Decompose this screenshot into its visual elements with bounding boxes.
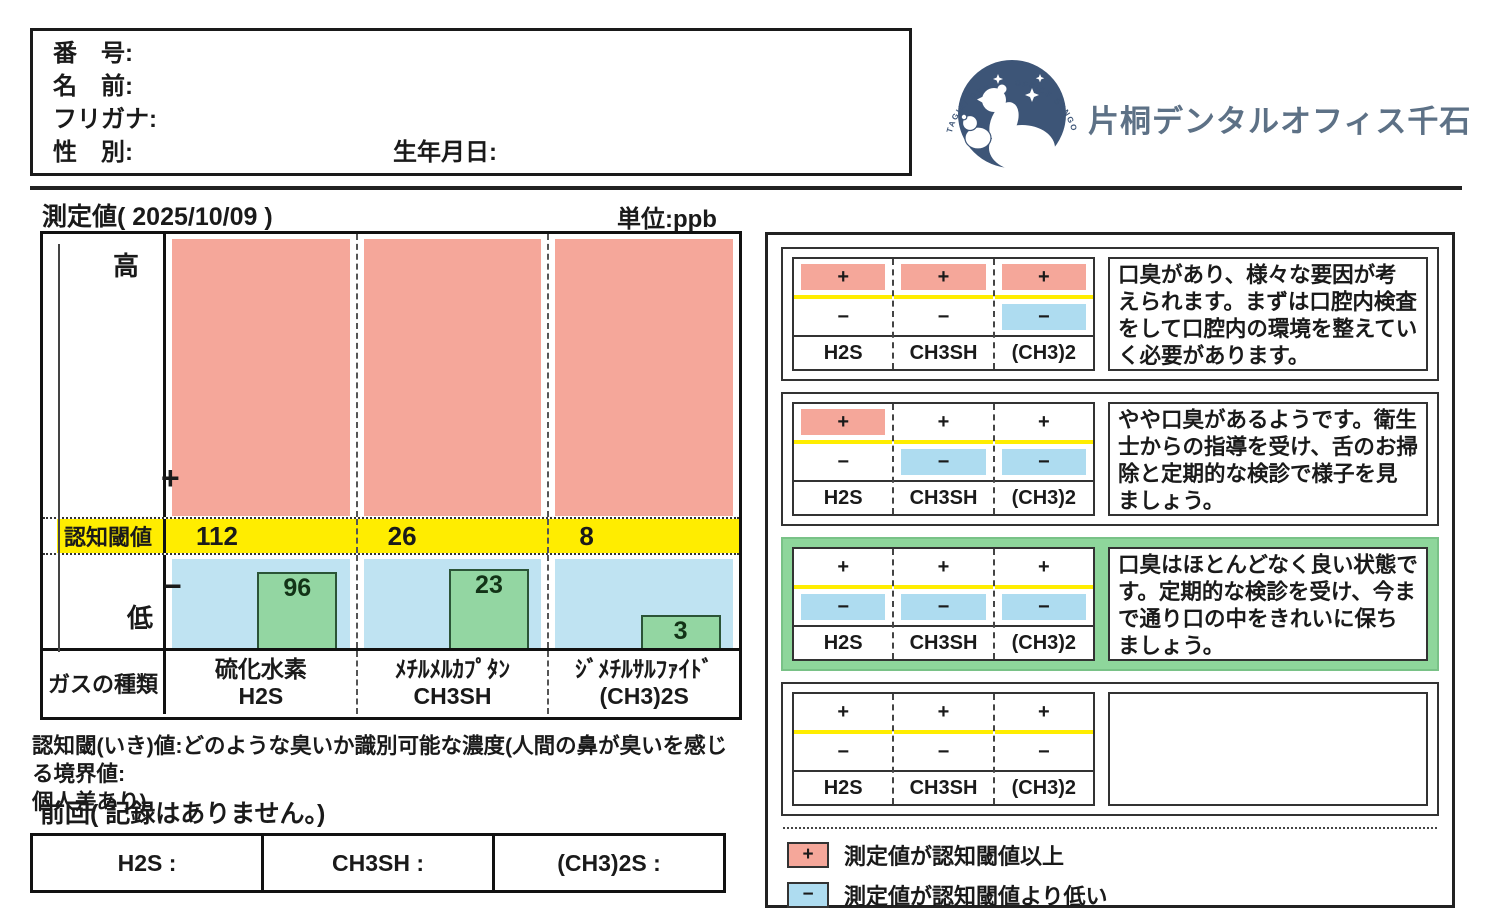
minus-cell: − [801,304,885,330]
gas-label: H2S [794,482,892,514]
previous-record-label: 前回( 記録はありません。) [40,794,325,830]
interpretation-box-empty: + − H2S + − CH3SH + − (CH3)2 [781,682,1439,816]
unit-label: 単位:ppb [617,199,717,234]
pattern-table: + − H2S + − CH3SH + − (CH3)2 [792,402,1095,516]
axis-label-high: 高 [113,246,139,283]
axis-label-plus: + [161,460,180,497]
interpretation-box-good-selected: + − H2S + − CH3SH + − (CH3)2 口臭はほとんどなく [781,537,1439,671]
breath-test-report-page: { "patient_box": { "number_label": "番 号:… [0,0,1500,920]
h2s-below-zone: 96 [163,555,356,648]
ch3sh-below-zone: 23 [356,555,548,648]
legend-below-threshold: − 測定値が認知閾値より低い [787,879,1439,911]
ch32s-threshold-value: 8 [549,521,593,552]
measurement-title: 測定値( 2025/10/09 ) [42,197,273,233]
plus-cell: + [1002,264,1086,290]
gas-type-row: ガスの種類 硫化水素 H2S ﾒﾁﾙﾒﾙｶﾌﾟﾀﾝ CH3SH ｼﾞﾒﾁﾙｻﾙﾌ… [43,648,739,714]
plus-cell: + [1002,554,1086,580]
h2s-value-bar: 96 [257,572,337,648]
interpretation-box-severe: + − H2S + − CH3SH + − (CH3)2 口臭があり、様々な [781,247,1439,381]
gas-label: H2S [794,772,892,804]
minus-cell: − [1002,449,1086,475]
threshold-band-label: 認知閾値 [54,520,152,552]
ch3sh-threshold-value: 26 [358,521,417,552]
ch32s-below-zone: 3 [547,555,739,648]
gas-label: (CH3)2 [995,627,1093,659]
plus-cell: + [1002,409,1086,435]
patient-gender-row: 性 別: 生年月日: [53,136,909,169]
minus-cell: − [801,449,885,475]
plus-cell: + [801,554,885,580]
legend-divider [783,827,1437,829]
clinic-logo: KATAGIRI DENTAL OFFICE SENGOKU [942,50,1082,180]
gas-measurement-chart: 認知閾値 112 26 8 96 23 [40,231,742,720]
gas-label: CH3SH [894,772,992,804]
minus-cell: − [1002,594,1086,620]
patient-gender-label: 性 別: [53,139,133,166]
ch3sh-above-zone [356,234,548,517]
polar-bear-logo-icon: KATAGIRI DENTAL OFFICE SENGOKU [942,50,1082,180]
gas-label-ch32s: ｼﾞﾒﾁﾙｻﾙﾌｧｲﾄﾞ (CH3)2S [547,651,739,714]
gas-label-ch3sh: ﾒﾁﾙﾒﾙｶﾌﾟﾀﾝ CH3SH [356,651,548,714]
pattern-table: + − H2S + − CH3SH + − (CH3)2 [792,692,1095,806]
axis-label-low: 低 [127,598,153,635]
gas-type-header: ガスの種類 [48,667,158,699]
ch3sh-value-bar: 23 [449,569,529,648]
minus-cell: − [801,594,885,620]
patient-number-label: 番 号: [53,37,909,70]
clinic-name: 片桐デンタルオフィス千石 [1088,96,1471,141]
patient-furigana-label: フリガナ: [53,103,909,136]
plus-cell: + [901,409,985,435]
minus-cell: − [801,739,885,765]
interpretation-text: 口臭はほとんどなく良い状態です。定期的な検診を受け、今まで通り口の中をきれいに保… [1108,547,1428,661]
h2s-measured-value: 96 [259,574,335,602]
legend-above-threshold: + 測定値が認知閾値以上 [787,839,1439,871]
plus-cell: + [901,264,985,290]
patient-birthdate-label: 生年月日: [393,136,497,169]
previous-values-table: H2S : CH3SH : (CH3)2S : [30,833,726,893]
plus-cell: + [801,264,885,290]
plus-cell: + [901,699,985,725]
plus-cell: + [801,699,885,725]
minus-cell: − [901,739,985,765]
gas-label: H2S [794,337,892,369]
plus-cell: + [801,409,885,435]
axis-label-minus: − [163,568,182,605]
ch32s-measured-value: 3 [643,617,719,645]
pattern-table: + − H2S + − CH3SH + − (CH3)2 [792,257,1095,371]
pink-plus-swatch: + [787,842,829,868]
interpretation-text: 口臭があり、様々な要因が考えられます。まずは口腔内検査をして口腔内の環境を整えて… [1108,257,1428,371]
previous-ch3sh-cell: CH3SH : [261,836,492,890]
y-axis-line [58,244,60,652]
previous-ch32s-cell: (CH3)2S : [492,836,723,890]
ch3sh-measured-value: 23 [451,571,527,599]
gas-label-h2s: 硫化水素 H2S [163,651,356,714]
interpretation-text: やや口臭があるようです。衛生士からの指導を受け、舌のお掃除と定期的な検診で様子を… [1108,402,1428,516]
patient-info-box: 番 号: 名 前: フリガナ: 性 別: 生年月日: [30,28,912,176]
interpretation-text [1108,692,1428,806]
plus-cell: + [901,554,985,580]
gas-label: CH3SH [894,482,992,514]
gas-label: (CH3)2 [995,337,1093,369]
ch32s-value-bar: 3 [641,615,721,648]
interpretation-panel: + − H2S + − CH3SH + − (CH3)2 口臭があり、様々な [765,232,1455,908]
minus-cell: − [901,594,985,620]
plus-cell: + [1002,699,1086,725]
minus-cell: − [1002,304,1086,330]
gas-label: H2S [794,627,892,659]
gas-label: CH3SH [894,337,992,369]
blue-minus-swatch: − [787,882,829,908]
header-divider [30,186,1462,190]
gas-label: CH3SH [894,627,992,659]
patient-name-label: 名 前: [53,70,909,103]
minus-cell: − [1002,739,1086,765]
minus-cell: − [901,304,985,330]
h2s-above-zone [163,234,356,517]
h2s-threshold-value: 112 [166,521,238,552]
threshold-band: 認知閾値 112 26 8 [43,517,739,555]
gas-label: (CH3)2 [995,482,1093,514]
pattern-table: + − H2S + − CH3SH + − (CH3)2 [792,547,1095,661]
above-threshold-row [43,234,739,517]
gas-label: (CH3)2 [995,772,1093,804]
interpretation-box-moderate: + − H2S + − CH3SH + − (CH3)2 やや口臭があるよう [781,392,1439,526]
ch32s-above-zone [547,234,739,517]
minus-cell: − [901,449,985,475]
previous-h2s-cell: H2S : [33,836,261,890]
